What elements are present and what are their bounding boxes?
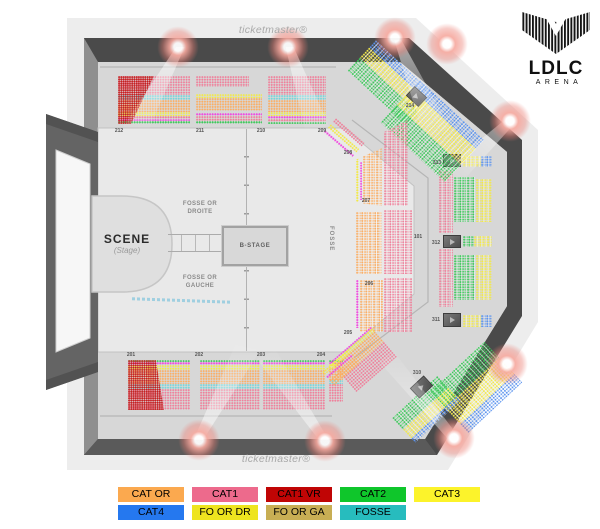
screen-glyph [418,383,426,391]
section-313-seats[interactable] [454,177,475,222]
seat-rows [200,370,260,384]
seat-rows [196,121,262,124]
fosse-or-gauche-line2: GAUCHE [168,282,232,290]
fosse-or-droite-line1: FOSSE OR [168,200,232,208]
backstage-screen [56,150,90,352]
video-screen-311 [443,313,461,327]
section-212-seats[interactable] [118,76,190,124]
section-312-seats[interactable] [439,249,453,307]
seat-rows [474,236,492,247]
seat-rows [356,158,359,202]
fosse-or-gauche-line1: FOSSE OR [168,274,232,282]
floor-section-206-seats[interactable] [384,278,412,332]
floor-section-208-seats[interactable] [384,120,408,206]
fosse-pit-label: FOSSE [328,226,334,251]
seat-rows [263,370,325,384]
fosse-or-droite-line2: DROITE [168,208,232,216]
seat-rows [268,100,326,112]
screen-glyph [450,317,455,323]
stage-title: SCENE [90,232,164,246]
fosse-or-gauche-label: FOSSE OR GAUCHE [168,274,232,290]
b-stage-label: B-STAGE [240,243,271,249]
screen-glyph [413,93,421,101]
section-label-203: 203 [252,352,270,358]
legend-cat2: CAT2 [340,487,406,502]
stage-label: SCENE (Stage) [90,232,164,255]
section-label-202: 202 [190,352,208,358]
section-label-310: 310 [408,370,426,376]
logo-name: LDLC [529,58,584,79]
section-312-seats[interactable] [476,255,492,300]
section-311-upper-seats[interactable] [463,315,492,327]
fosse-or-droite-label: FOSSE OR DROITE [168,200,232,216]
seat-rows [481,315,492,327]
legend-fosse: FOSSE [340,505,406,520]
legend-cat3: CAT3 [414,487,480,502]
seat-rows [268,122,326,124]
section-label-204: 204 [312,352,330,358]
screen-glyph [450,239,455,245]
floor-section-206-seats[interactable] [356,280,359,328]
legend-fo-or-ga: FO OR GA [266,505,332,520]
section-label-207: 207 [357,198,375,204]
seat-rows [463,236,474,247]
seat-rows [268,76,326,95]
section-label-313: 313 [428,160,446,166]
section-label-209: 209 [313,128,331,134]
seat-gap [196,87,262,94]
ldlc-arena-logo: LDLC ARENA [516,6,596,88]
b-stage: B-STAGE [222,226,288,266]
seat-rows [196,98,262,111]
section-label-311: 311 [427,317,445,323]
arena-map: B-STAGE FOSSE OR DROITE FOSSE OR GAUCHE … [0,0,600,529]
floor-section-206-seats[interactable] [360,280,383,332]
seat-rows [200,389,260,410]
section-211-seats[interactable] [196,76,262,124]
section-label-205: 205 [339,330,357,336]
stage-subtitle: (Stage) [90,246,164,255]
seat-rows [463,315,481,327]
section-label-312: 312 [427,240,445,246]
seat-rows [263,389,325,410]
runway [168,234,226,252]
ticketmaster-watermark-bottom: ticketmaster® [191,453,361,465]
seat-rows [360,162,362,200]
section-label-101: 101 [409,234,427,240]
legend-cat1: CAT1 [192,487,258,502]
seat-rows [481,156,492,167]
ldlc-logo-graphic: LDLC ARENA [516,6,596,88]
section-label-214: 214 [401,103,419,109]
ticketmaster-watermark-top: ticketmaster® [188,24,358,36]
video-screen-312 [443,235,461,248]
section-203-seats[interactable] [263,360,325,410]
section-210-seats[interactable] [268,76,326,124]
legend-fo-or-dr: FO OR DR [192,505,258,520]
section-313-seats[interactable] [476,179,492,222]
legend-cat4: CAT4 [118,505,184,520]
seat-rows [196,76,249,87]
section-label-208: 208 [339,150,357,156]
logo-subtitle: ARENA [536,79,583,86]
section-label-210: 210 [252,128,270,134]
section-202-seats[interactable] [200,360,260,410]
floor-section-207-seats[interactable] [356,212,382,274]
legend-cat-or: CAT OR [118,487,184,502]
section-label-201: 201 [122,352,140,358]
section-312-upper-seats[interactable] [463,236,492,247]
section-label-211: 211 [191,128,209,134]
legend-cat1-vr: CAT1 VR [266,487,332,502]
section-312-seats[interactable] [454,255,475,300]
section-201-seats[interactable] [128,360,190,410]
legend-row-1: CAT OR CAT1 CAT1 VR CAT2 CAT3 [118,487,480,502]
section-label-206: 206 [360,281,378,287]
floor-section-207-seats[interactable] [384,210,412,274]
legend-row-2: CAT4 FO OR DR FO OR GA FOSSE [118,505,406,520]
section-label-212: 212 [110,128,128,134]
